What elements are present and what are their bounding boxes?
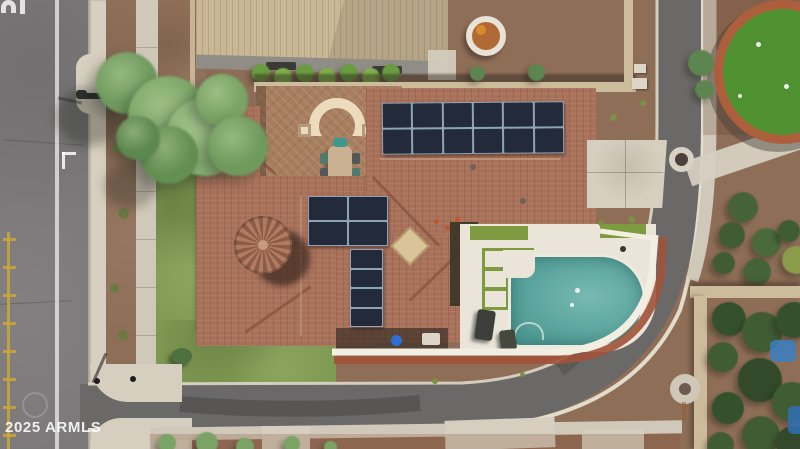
gravel-weed [520, 372, 525, 377]
tree-canopy [116, 116, 160, 160]
driveway-joint [587, 172, 663, 173]
manhole-center [679, 383, 691, 395]
pool-wall-jog [600, 231, 652, 238]
tree-canopy [208, 116, 268, 176]
pool-wall-cap [332, 235, 655, 352]
driveway [587, 140, 667, 208]
pool-wall-brick-band [334, 237, 663, 360]
gravel-weed [598, 220, 604, 226]
pavement-glyph-arc [1, 0, 16, 13]
driveway-joint [625, 140, 626, 208]
gravel-weed [610, 114, 617, 121]
pavement-glyph-bar [20, 0, 25, 14]
aerial-photo: 2025 ARMLS [0, 0, 800, 449]
street-utility-cover [669, 147, 694, 172]
gravel-weed [432, 378, 438, 384]
watermark: 2025 ARMLS [5, 419, 101, 436]
gravel-weed [628, 216, 635, 223]
rust-streak [682, 402, 686, 420]
gravel-weed [640, 100, 646, 106]
